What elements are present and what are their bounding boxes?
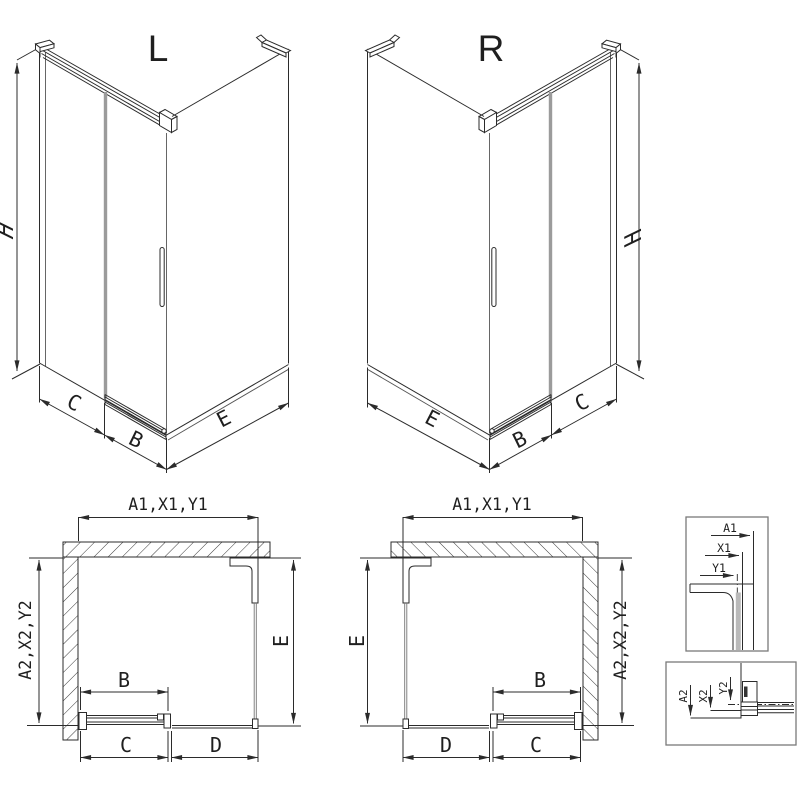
technical-drawing: L H C B E R H C B E A1,X1,Y1 A2,X2,Y2 E … — [0, 0, 800, 800]
plan-left-dim-right: E — [269, 635, 293, 647]
plan-right-view: A1,X1,Y1 E A2,X2,Y2 B D C — [345, 495, 634, 762]
iso-left-dim-h: H — [0, 216, 19, 243]
detail-dim-x2: X2 — [697, 689, 710, 702]
iso-left-dim-b: B — [125, 426, 147, 453]
iso-left-dim-e: E — [213, 405, 235, 432]
iso-left-label: L — [148, 28, 169, 69]
plan-left-dim-left: A2,X2,Y2 — [16, 600, 35, 679]
iso-right-dim-c: C — [571, 389, 593, 416]
iso-right-dim-h: H — [619, 224, 646, 251]
plan-left-dim-door: B — [118, 668, 130, 692]
detail-bottom-rail: A2 X2 Y2 — [666, 662, 796, 745]
plan-right-dim-d: D — [440, 733, 452, 757]
iso-right-label: R — [478, 28, 505, 69]
detail-dim-a1: A1 — [723, 521, 737, 535]
plan-right-dim-door: B — [534, 668, 546, 692]
rail-clip-section — [744, 687, 748, 698]
detail-dim-y1: Y1 — [712, 561, 726, 575]
detail-dim-y2: Y2 — [717, 681, 730, 694]
plan-right-dim-left: E — [345, 635, 369, 647]
detail-top-profile: A1 X1 Y1 — [686, 517, 768, 651]
detail-dim-a2: A2 — [677, 689, 690, 702]
iso-left-dim-c: C — [63, 389, 85, 416]
plan-right-dim-right: A2,X2,Y2 — [611, 600, 630, 679]
plan-right-dim-c: C — [530, 733, 542, 757]
plan-left-lineart — [27, 517, 301, 762]
iso-right-dim-e: E — [421, 405, 443, 432]
glass-section — [736, 593, 741, 651]
plan-right-dim-top: A1,X1,Y1 — [452, 495, 531, 514]
plan-right-lineart — [360, 517, 634, 762]
plan-left-dim-c: C — [120, 733, 132, 757]
plan-left-dim-d: D — [210, 733, 222, 757]
iso-right-lineart — [366, 35, 645, 473]
iso-left-lineart — [12, 35, 291, 473]
iso-right-dim-b: B — [509, 426, 531, 453]
iso-left-view: L H C B E — [0, 28, 290, 473]
plan-left-view: A1,X1,Y1 A2,X2,Y2 E B C D — [16, 495, 301, 762]
detail-dim-x1: X1 — [717, 541, 731, 555]
iso-right-view: R H C B E — [366, 28, 647, 473]
plan-left-dim-top: A1,X1,Y1 — [128, 495, 207, 514]
